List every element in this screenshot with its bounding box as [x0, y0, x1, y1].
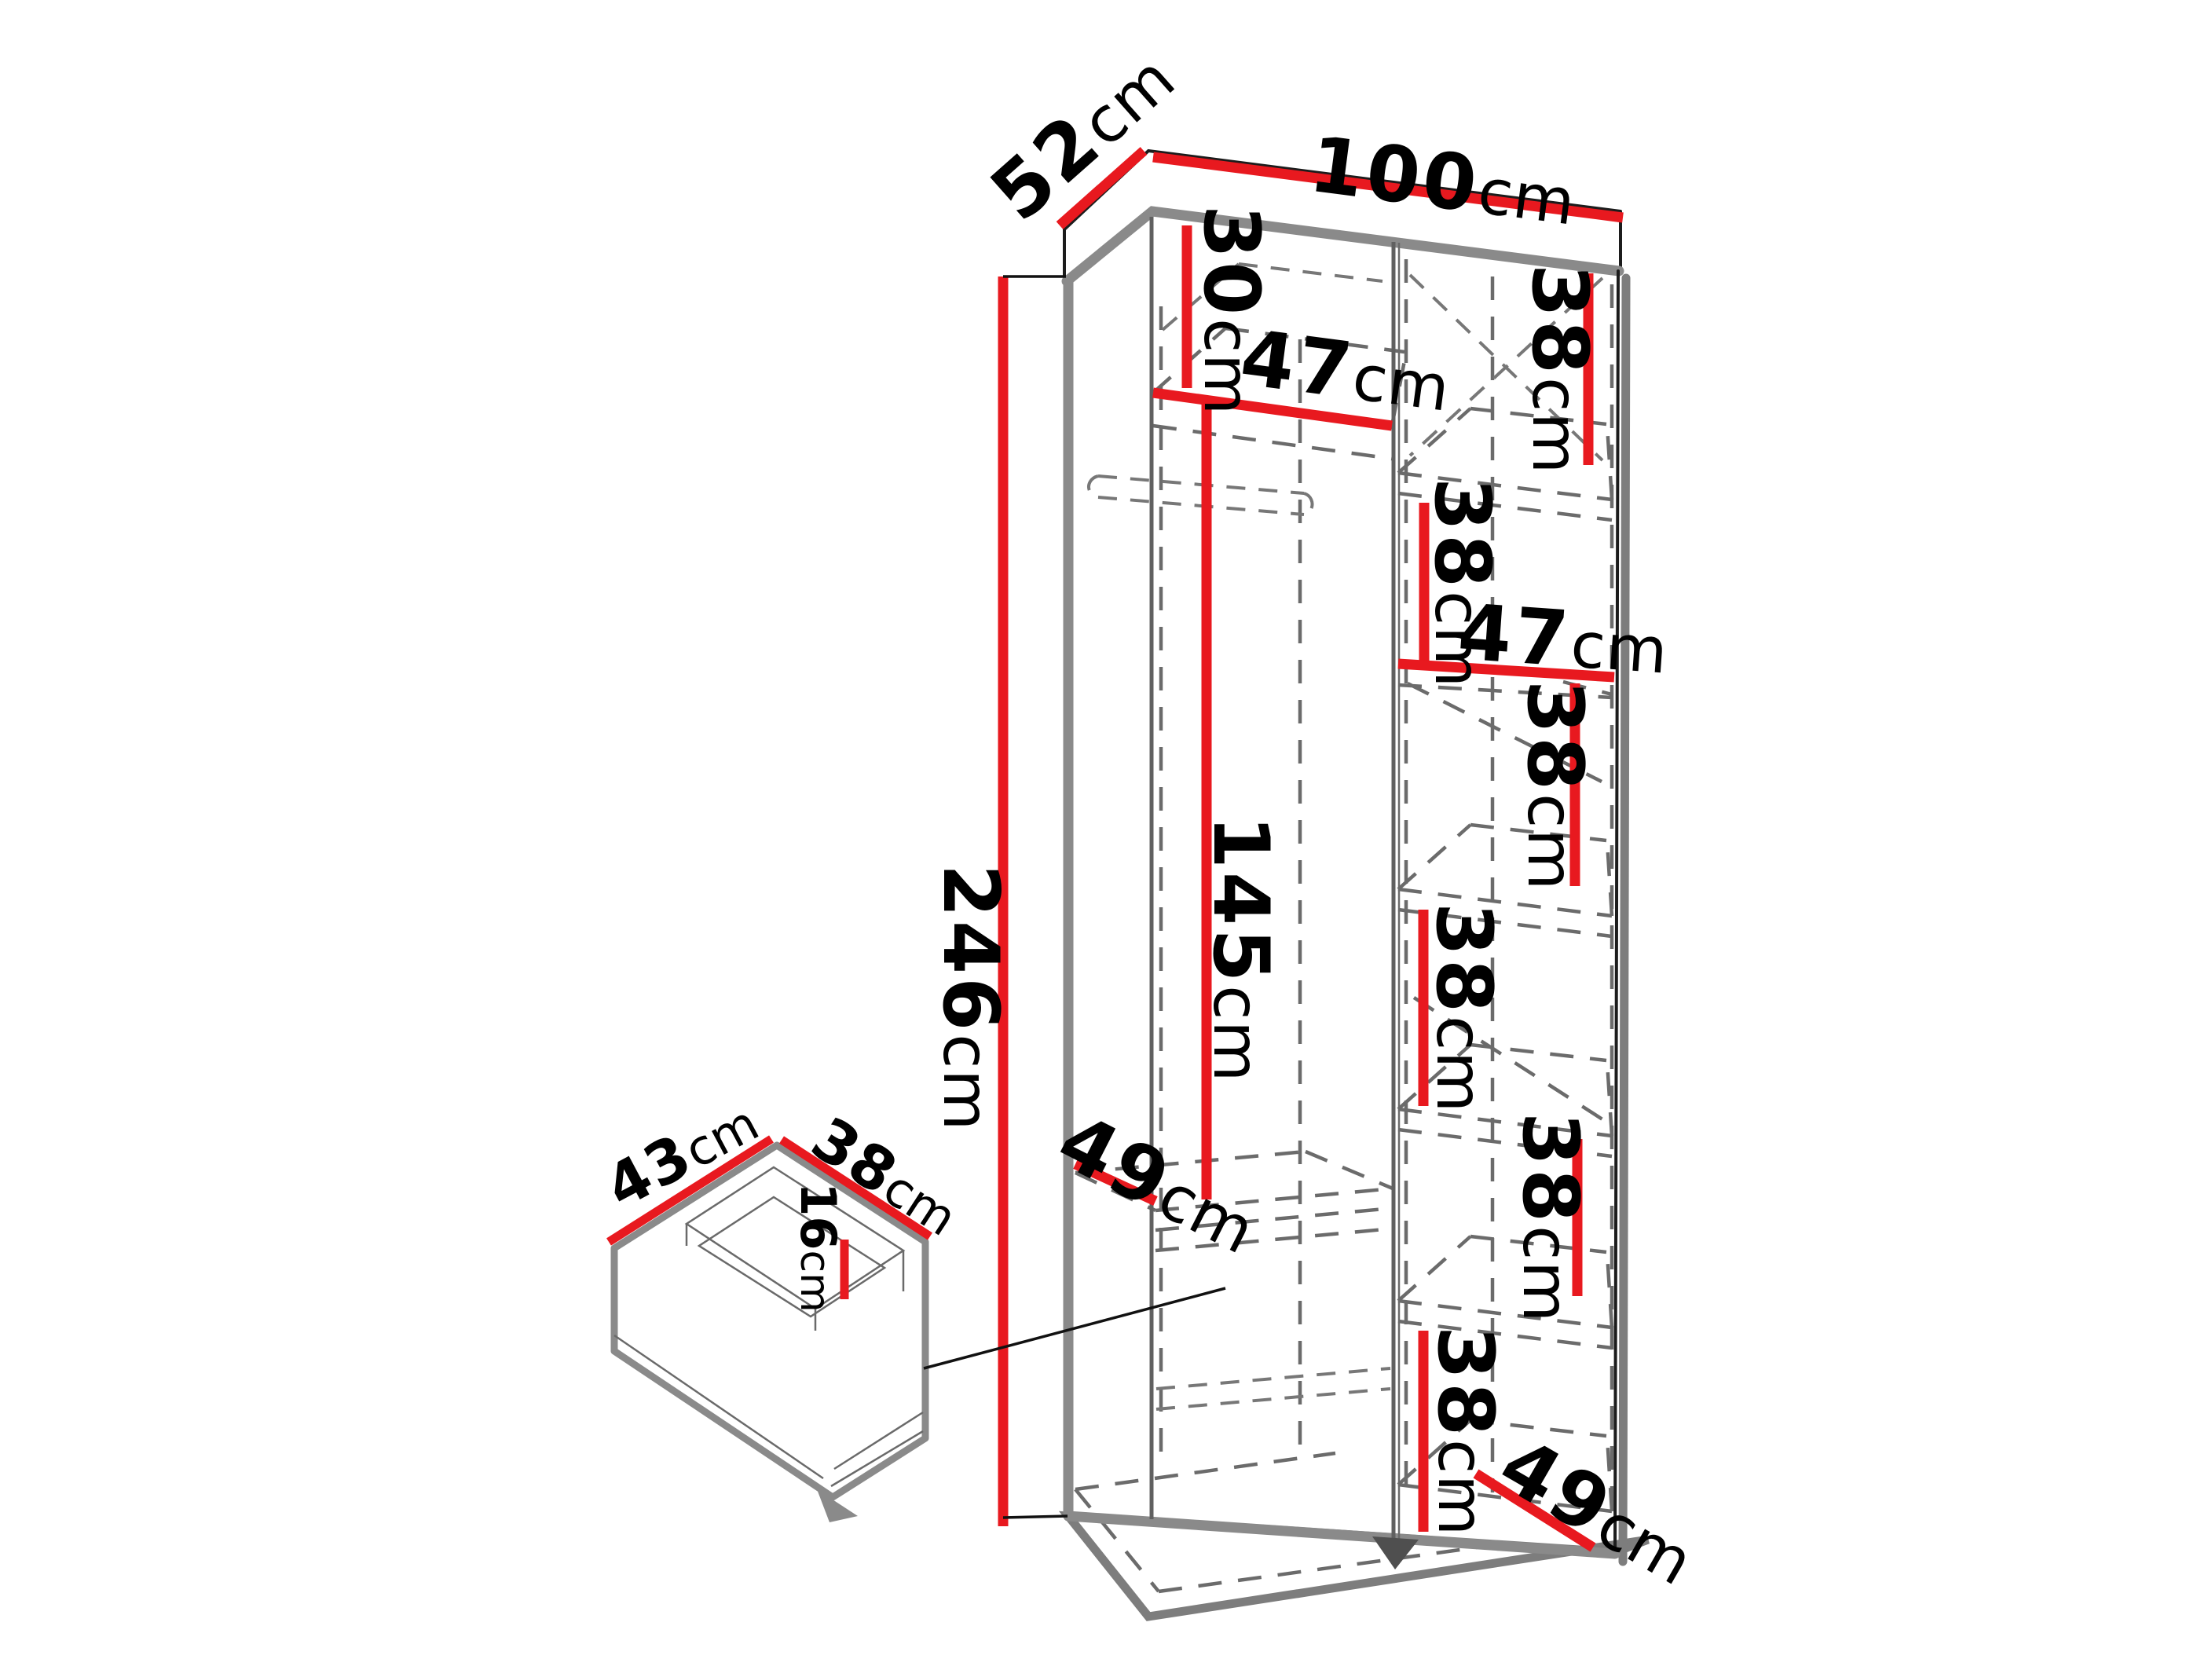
right-side-shadow [1623, 278, 1626, 1562]
dim-label-right-cell1-38: 38cm [1514, 264, 1604, 474]
drawer-pointer-line [924, 1288, 1225, 1368]
clothes-rail [1089, 476, 1313, 515]
dim-label-hanging-145: 145cm [1196, 815, 1285, 1083]
dim-label-right-cell3-38: 38cm [1510, 680, 1599, 891]
left-drawer-slides [1156, 1368, 1390, 1409]
dim-label-right-cell6-38: 38cm [1420, 1326, 1510, 1536]
furniture-dimension-diagram: 100cm 52cm 246cm 30cm 47cm 145cm 49cm 38… [0, 0, 2212, 1659]
dim-label-height-246: 246cm [925, 864, 1015, 1132]
dim-label-left-depth-49: 49cm [1044, 1097, 1273, 1272]
dim-label-right-shelf-47: 47cm [1455, 588, 1672, 691]
front-right-edge [1615, 271, 1618, 1554]
dim-label-drawer-height-16: 16cm [789, 1182, 847, 1313]
wardrobe-diagram-canvas: 100cm 52cm 246cm 30cm 47cm 145cm 49cm 38… [0, 0, 2212, 1659]
dim-label-right-cell5-38: 38cm [1505, 1112, 1595, 1323]
dim-label-right-cell4-38: 38cm [1419, 903, 1508, 1113]
dim-label-right-depth-49: 49cm [1485, 1420, 1712, 1603]
